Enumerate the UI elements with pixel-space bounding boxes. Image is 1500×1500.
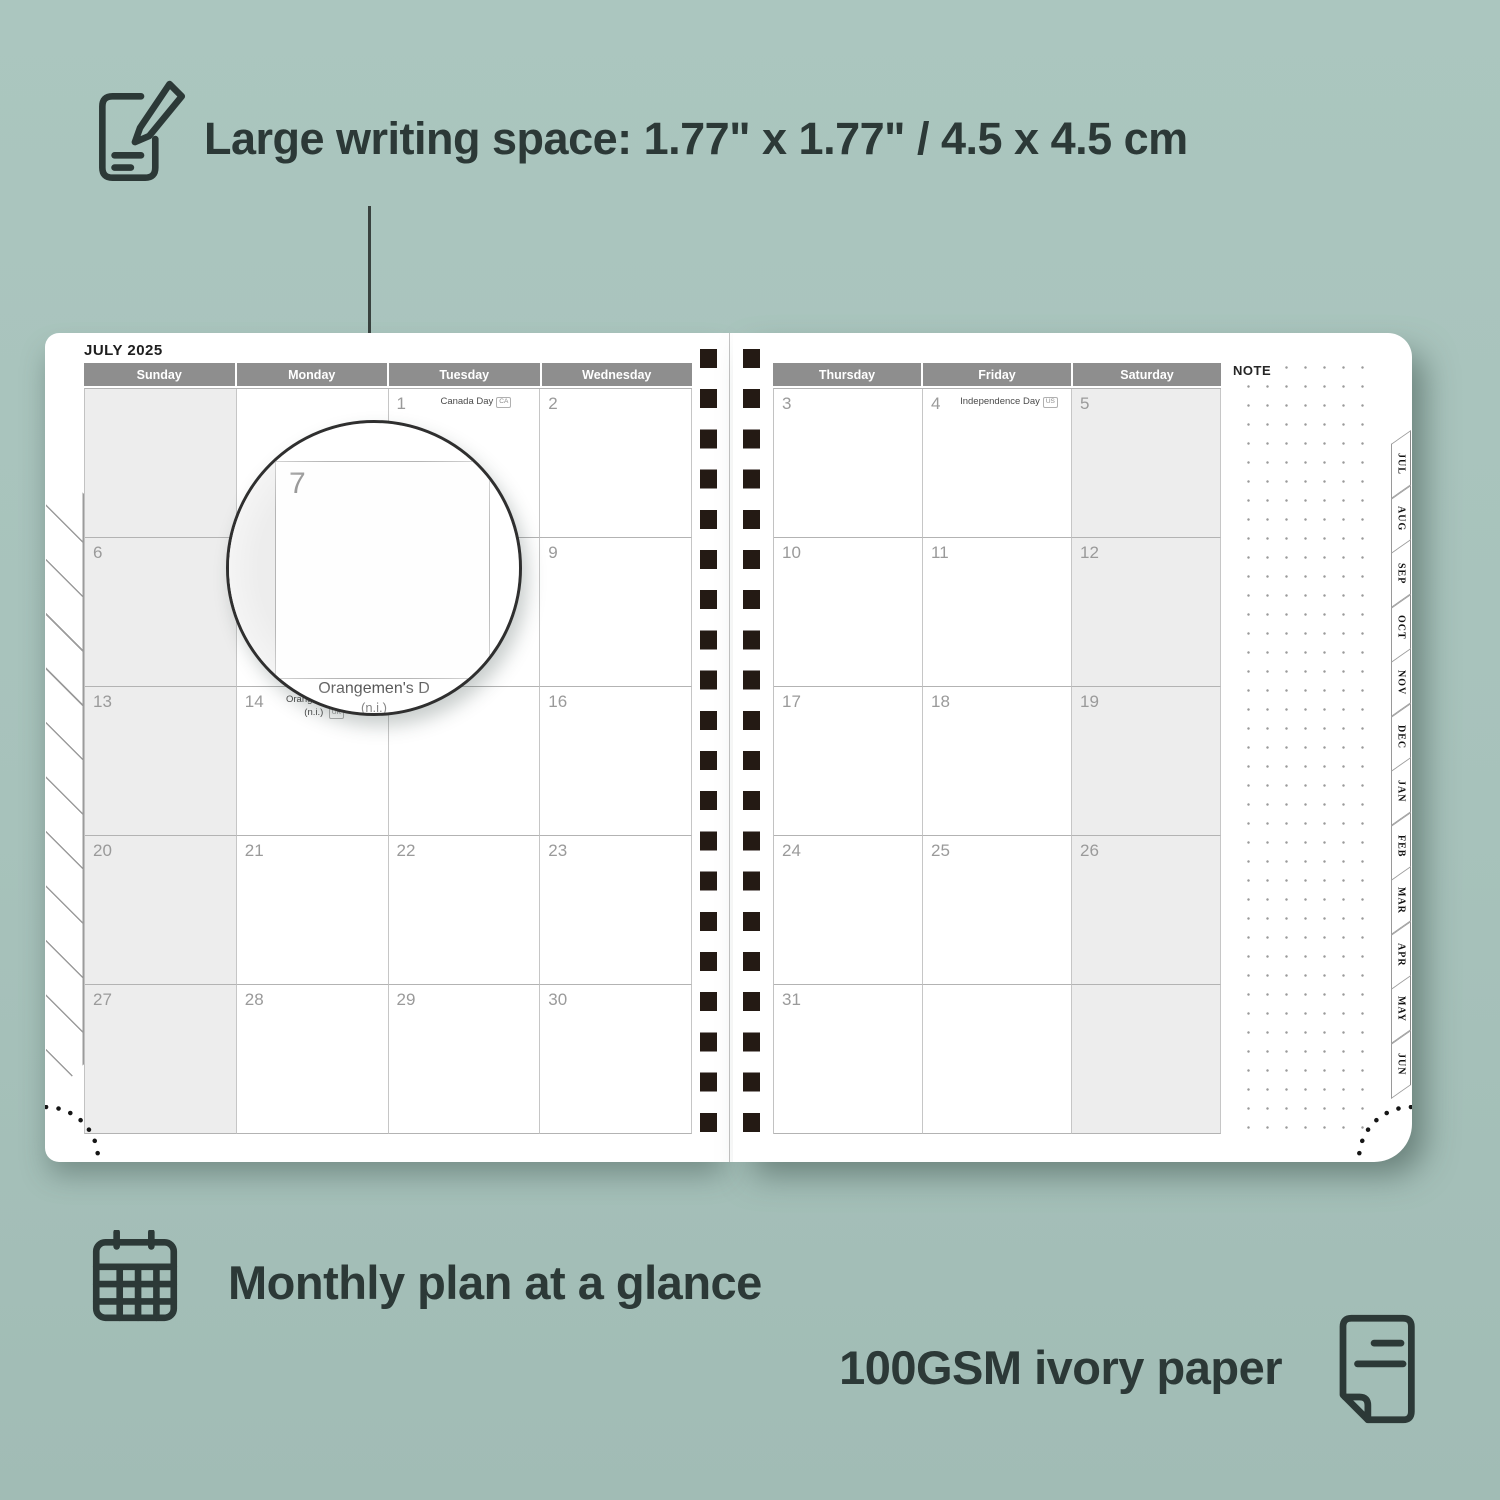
day-number: 3 — [782, 394, 791, 414]
day-cell: 31 — [774, 985, 923, 1134]
month-tab-label: MAY — [1391, 982, 1411, 1037]
day-cell — [923, 985, 1072, 1134]
month-tab-strip: JULAUGSEPOCTNOVDECJANFEBMARAPRMAYJUN — [1391, 437, 1411, 1091]
country-badge: US — [1043, 397, 1058, 408]
calendar-icon — [84, 1230, 186, 1326]
day-number: 10 — [782, 543, 801, 563]
day-cell: 21 — [237, 836, 389, 985]
month-tab-label: JAN — [1391, 764, 1411, 819]
right-grid: 34Independence DayUS51011121718192425263… — [773, 388, 1221, 1134]
day-cell: 25 — [923, 836, 1072, 985]
day-header: Tuesday — [389, 363, 540, 386]
left-day-headers: SundayMondayTuesdayWednesday — [84, 363, 692, 386]
country-badge: CA — [496, 397, 511, 408]
note-dot-grid: NOTE — [1233, 363, 1375, 1145]
magnifier-circle: 7 Orangemen's D (n.i.) — [226, 420, 522, 716]
day-cell: 26 — [1072, 836, 1221, 985]
month-tab-mar[interactable]: MAR — [1391, 873, 1411, 928]
month-tab-dec[interactable]: DEC — [1391, 710, 1411, 765]
magnified-holiday-subtext: (n.i.) — [229, 700, 519, 715]
day-header: Wednesday — [542, 363, 693, 386]
corner-dots-left — [45, 1105, 115, 1170]
day-cell: 19 — [1072, 687, 1221, 836]
month-tab-feb[interactable]: FEB — [1391, 819, 1411, 874]
day-number: 23 — [548, 841, 567, 861]
month-tab-sep[interactable]: SEP — [1391, 546, 1411, 601]
month-tab-jun[interactable]: JUN — [1391, 1037, 1411, 1092]
day-cell: 18 — [923, 687, 1072, 836]
day-number: 29 — [397, 990, 416, 1010]
month-tab-oct[interactable]: OCT — [1391, 601, 1411, 656]
day-cell: 23 — [540, 836, 692, 985]
day-number: 11 — [931, 543, 949, 563]
month-tab-label: JUL — [1391, 437, 1411, 492]
right-page: ThursdayFridaySaturday 34Independence Da… — [733, 333, 1412, 1162]
product-image: Large writing space: 1.77" x 1.77" / 4.5… — [0, 0, 1500, 1500]
paper-icon — [1320, 1310, 1424, 1426]
day-cell: 3 — [774, 389, 923, 538]
day-cell: 22 — [389, 836, 541, 985]
day-cell: 13 — [85, 687, 237, 836]
day-cell — [1072, 985, 1221, 1134]
day-cell: 9 — [540, 538, 692, 687]
day-header: Thursday — [773, 363, 921, 386]
month-tab-label: NOV — [1391, 655, 1411, 710]
magnified-sunday-column — [229, 423, 275, 713]
week-row: 27282930 — [85, 985, 692, 1134]
day-header: Saturday — [1073, 363, 1221, 386]
corner-dots-right — [1342, 1105, 1412, 1170]
week-row: 31 — [774, 985, 1221, 1134]
day-cell: 28 — [237, 985, 389, 1134]
day-number: 13 — [93, 692, 112, 712]
feature-paper: 100GSM ivory paper — [839, 1340, 1282, 1395]
month-tab-label: AUG — [1391, 492, 1411, 547]
week-row: 101112 — [774, 538, 1221, 687]
day-number: 9 — [548, 543, 557, 563]
day-number: 28 — [245, 990, 264, 1010]
holiday-label: Independence DayUS — [949, 396, 1069, 409]
magnified-day-number: 7 — [289, 467, 306, 501]
day-number: 24 — [782, 841, 801, 861]
month-tab-jan[interactable]: JAN — [1391, 764, 1411, 819]
magnified-day-cell — [275, 461, 490, 679]
month-title: JULY 2025 — [84, 342, 163, 359]
day-cell: 17 — [774, 687, 923, 836]
day-header: Monday — [237, 363, 388, 386]
day-cell: 29 — [389, 985, 541, 1134]
feature-monthly-plan: Monthly plan at a glance — [228, 1255, 762, 1310]
right-calendar: ThursdayFridaySaturday 34Independence Da… — [773, 363, 1221, 1134]
note-label: NOTE — [1233, 363, 1277, 380]
month-tab-label: SEP — [1391, 546, 1411, 601]
day-cell: 4Independence DayUS — [923, 389, 1072, 538]
day-number: 21 — [245, 841, 264, 861]
day-number: 1 — [397, 394, 406, 414]
page-edge-hatching — [46, 455, 84, 1103]
day-number: 30 — [548, 990, 567, 1010]
week-row: 171819 — [774, 687, 1221, 836]
month-tab-apr[interactable]: APR — [1391, 928, 1411, 983]
day-number: 2 — [548, 394, 557, 414]
holiday-label: Canada DayCA — [415, 396, 538, 409]
day-cell: 6 — [85, 538, 237, 687]
day-cell — [85, 389, 237, 538]
month-tab-label: OCT — [1391, 601, 1411, 656]
month-tab-label: APR — [1391, 928, 1411, 983]
month-tab-label: JUN — [1391, 1037, 1411, 1092]
day-cell: 10 — [774, 538, 923, 687]
day-number: 25 — [931, 841, 950, 861]
day-cell: 30 — [540, 985, 692, 1134]
month-tab-may[interactable]: MAY — [1391, 982, 1411, 1037]
magnified-holiday-text: Orangemen's D — [229, 680, 519, 698]
day-number: 19 — [1080, 692, 1099, 712]
holiday-name: Canada DayCA — [415, 396, 538, 409]
day-number: 16 — [548, 692, 567, 712]
day-number: 6 — [93, 543, 102, 563]
day-number: 22 — [397, 841, 416, 861]
right-day-headers: ThursdayFridaySaturday — [773, 363, 1221, 386]
month-tab-label: MAR — [1391, 873, 1411, 928]
month-tab-jul[interactable]: JUL — [1391, 437, 1411, 492]
day-cell: 24 — [774, 836, 923, 985]
day-number: 18 — [931, 692, 950, 712]
day-cell: 11 — [923, 538, 1072, 687]
day-cell: 12 — [1072, 538, 1221, 687]
day-number: 5 — [1080, 394, 1089, 414]
day-number: 20 — [93, 841, 112, 861]
day-number: 26 — [1080, 841, 1099, 861]
day-number: 27 — [93, 990, 112, 1010]
spiral-binding-left — [700, 349, 717, 1153]
day-number: 12 — [1080, 543, 1099, 563]
day-number: 4 — [931, 394, 940, 414]
holiday-name: Independence DayUS — [949, 396, 1069, 409]
month-tab-label: DEC — [1391, 710, 1411, 765]
day-header: Sunday — [84, 363, 235, 386]
day-cell: 16 — [540, 687, 692, 836]
day-cell: 2 — [540, 389, 692, 538]
day-header: Friday — [923, 363, 1071, 386]
day-cell: 20 — [85, 836, 237, 985]
month-tab-aug[interactable]: AUG — [1391, 492, 1411, 547]
day-number: 17 — [782, 692, 801, 712]
month-tab-label: FEB — [1391, 819, 1411, 874]
month-tab-nov[interactable]: NOV — [1391, 655, 1411, 710]
day-cell: 5 — [1072, 389, 1221, 538]
week-row: 242526 — [774, 836, 1221, 985]
writing-icon — [88, 80, 190, 192]
feature-writing-space: Large writing space: 1.77" x 1.77" / 4.5… — [204, 113, 1188, 165]
spiral-binding-right — [743, 349, 760, 1153]
week-row: 20212223 — [85, 836, 692, 985]
day-number: 31 — [782, 990, 801, 1010]
week-row: 34Independence DayUS5 — [774, 389, 1221, 538]
